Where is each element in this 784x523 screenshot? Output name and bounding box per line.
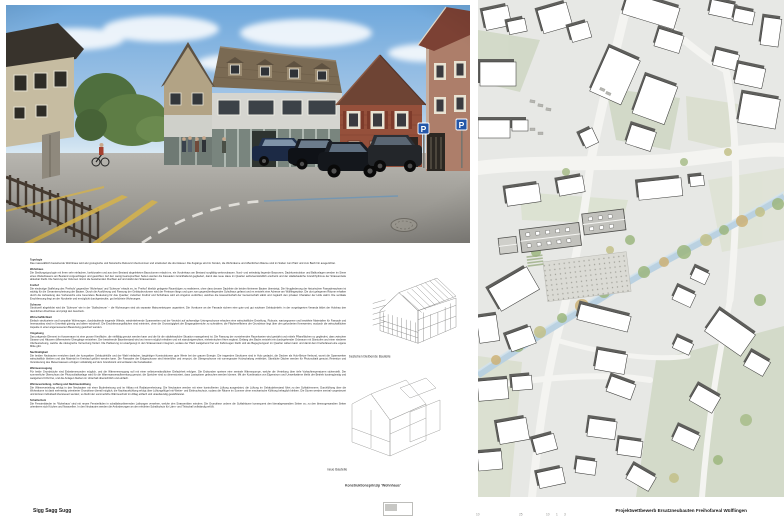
street-perspective-rendering: P P — [6, 5, 470, 243]
section-body: Die Siedlungstypologie mit ihren sehr ei… — [30, 271, 346, 281]
axon-existing-structure — [368, 260, 468, 346]
section-body: Die Wärmeverteilung erfolgt in den Neuba… — [30, 386, 346, 396]
section-body: Strukturell abgebildet wird die 'Scheune… — [30, 306, 346, 312]
section-body: Das prägende Element im Aussenraum ist e… — [30, 335, 346, 348]
site-plan-canvas — [478, 0, 784, 497]
site-plan-map — [478, 0, 784, 497]
rendering-canvas: P P — [6, 5, 470, 243]
section-body: Die eindeutige Staffelung des 'Freihofs'… — [30, 287, 346, 300]
project-motto: Sigg Sagg Sugg — [33, 503, 110, 521]
axon-new-volume — [346, 364, 464, 458]
locator-icon — [383, 502, 413, 516]
section-body: Das massstäblich bestehende Wohnhaus wir… — [30, 262, 346, 265]
section-body: Die beiden Neubauten erreichen dank der … — [30, 354, 346, 364]
section-body: Für beide Grundstücke sind Erdwärmesonde… — [30, 370, 346, 380]
section-body: Die Fensterbänder im 'Wohnhaus' sind mit… — [30, 402, 346, 408]
scale-mark: 10 — [476, 505, 483, 523]
caption-existing-parts: bestehen bleibende Bauteile — [349, 347, 432, 365]
locator-highlight — [385, 504, 397, 511]
board-title: Projektwettbewerb Ersatzneubauten Freiho… — [484, 503, 747, 521]
competition-board: { "colors": { "sky_blue": "#6fa8dc", "ro… — [0, 0, 784, 519]
section-body: Einfach strukturierte und kompakte Wohnu… — [30, 319, 346, 329]
project-description: Typologie Das massstäblich bestehende Wo… — [30, 258, 346, 494]
caption-construction-principle: Konstruktionsprinzip 'Wohnhaus' — [345, 476, 456, 494]
